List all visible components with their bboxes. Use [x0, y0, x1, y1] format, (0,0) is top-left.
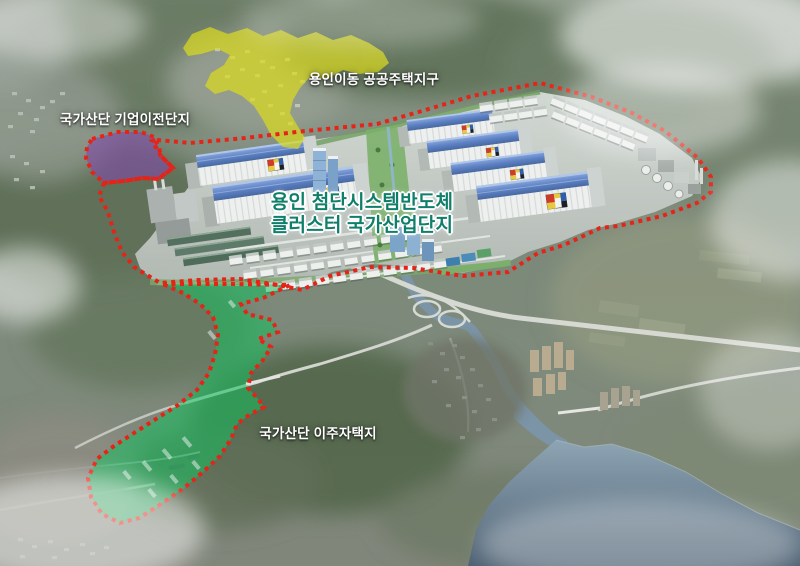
cluster-title-line2: 클러스터 국가산업단지: [271, 214, 453, 237]
aerial-map: 용인이동 공공주택지구 국가산단 기업이전단지 용인 첨단시스템반도체 클러스터…: [0, 0, 800, 566]
label-housing-district: 용인이동 공공주택지구: [309, 68, 439, 88]
label-resettlement-housing: 국가산단 이주자택지: [259, 422, 377, 442]
label-relocation-complex: 국가산단 기업이전단지: [60, 108, 190, 128]
label-cluster-title: 용인 첨단시스템반도체 클러스터 국가산업단지: [271, 191, 453, 237]
cluster-title-line1: 용인 첨단시스템반도체: [271, 191, 453, 214]
